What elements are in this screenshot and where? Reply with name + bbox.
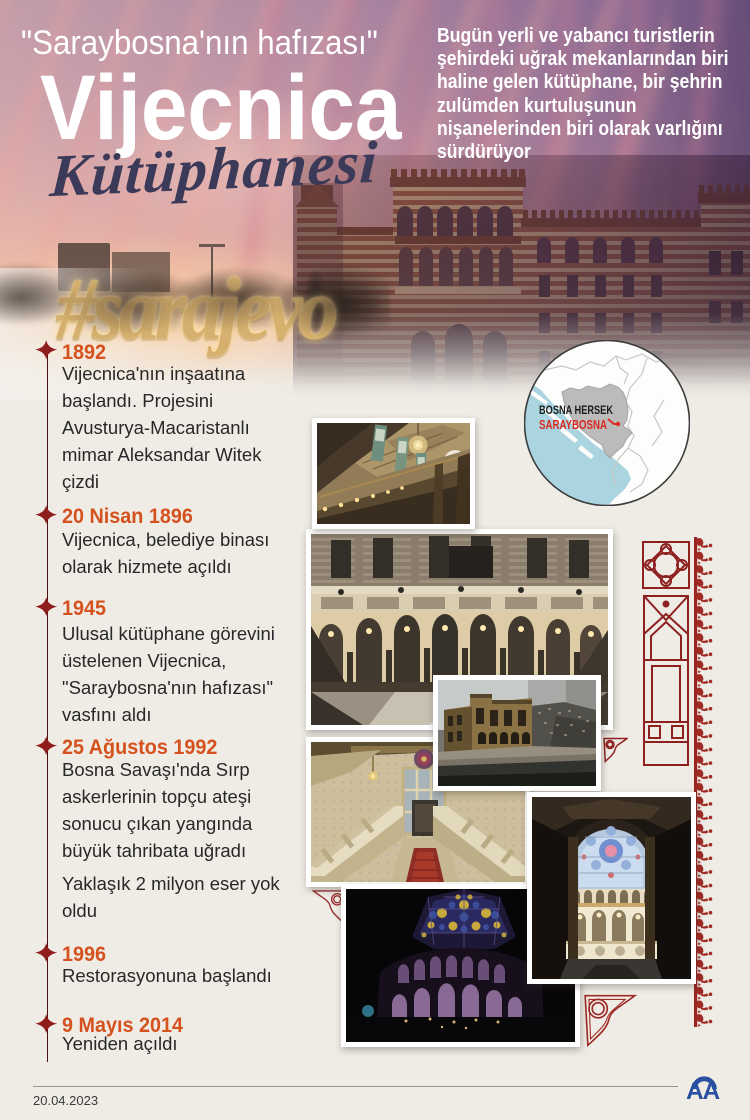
svg-text:SARAYBOSNA: SARAYBOSNA bbox=[539, 418, 607, 432]
svg-text:AA: AA bbox=[687, 1078, 720, 1100]
svg-text:BOSNA HERSEK: BOSNA HERSEK bbox=[539, 403, 613, 417]
